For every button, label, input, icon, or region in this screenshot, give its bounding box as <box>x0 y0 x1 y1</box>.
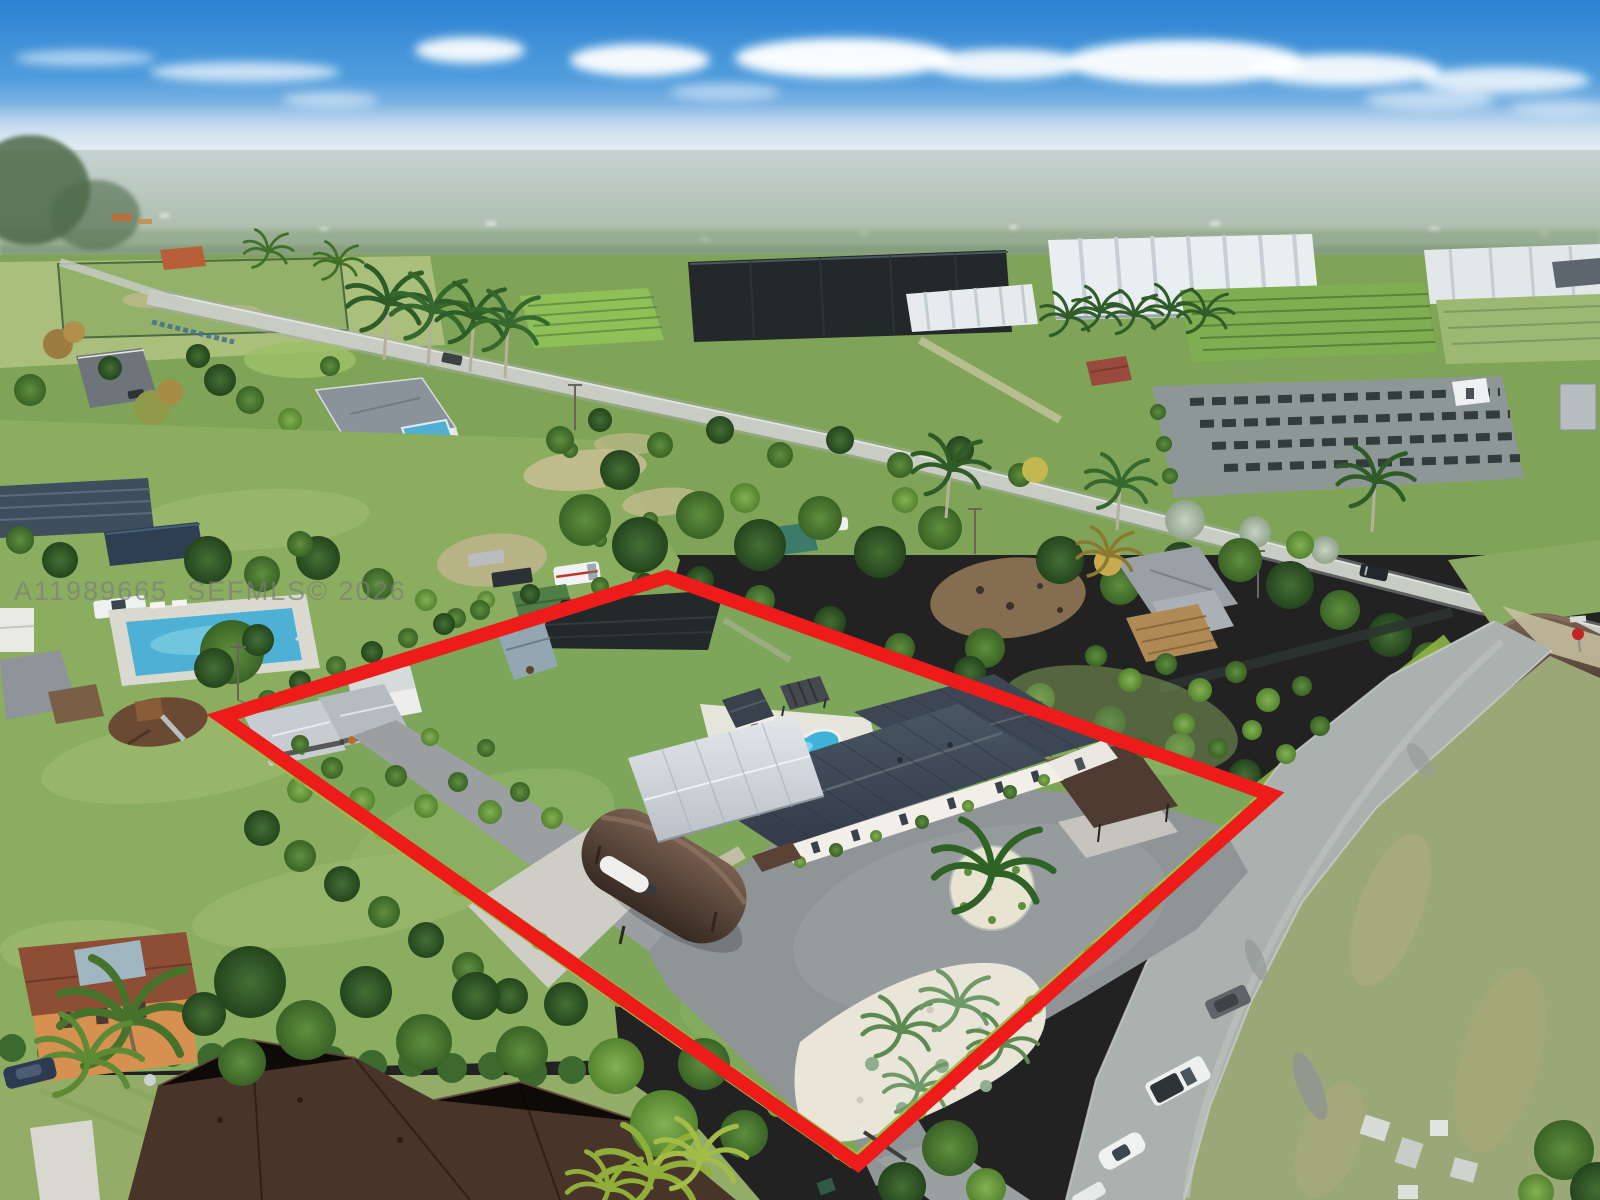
white-shed <box>0 608 34 652</box>
satellite-dish <box>144 1074 156 1086</box>
gray-building <box>1560 384 1596 430</box>
front-walk <box>30 1120 100 1200</box>
distant-landscape <box>0 135 1600 268</box>
golden-tree <box>1022 457 1048 483</box>
green-bin <box>816 1178 835 1196</box>
mls-watermark: A11989665 SEFMLS© 2026 <box>14 576 407 606</box>
aerial-photo: A11989665 SEFMLS© 2026 <box>0 0 1600 1200</box>
tile-roof-house <box>160 246 206 270</box>
